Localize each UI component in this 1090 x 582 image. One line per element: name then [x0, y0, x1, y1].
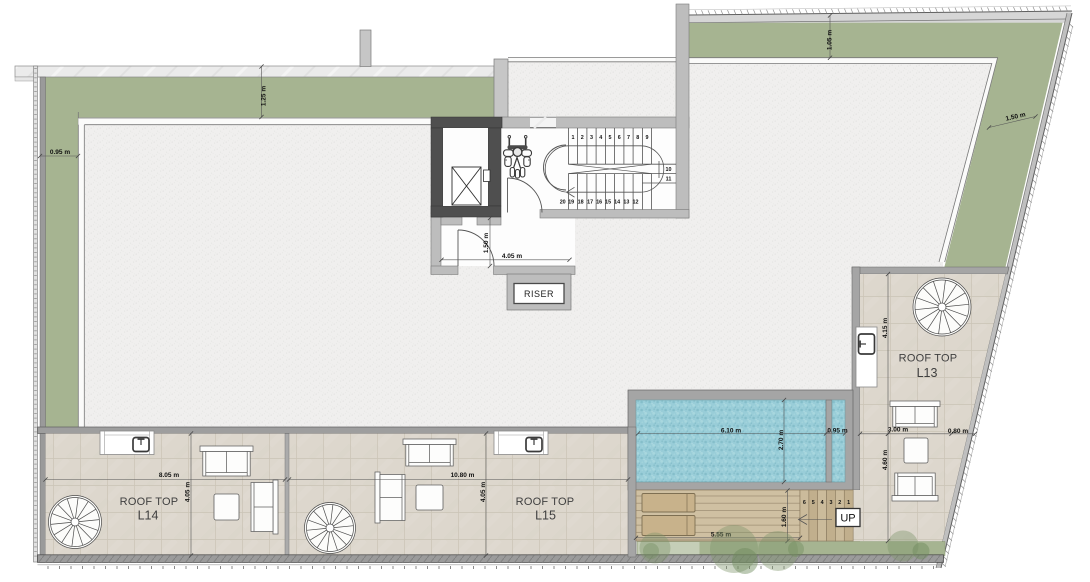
svg-text:RISER: RISER — [524, 289, 554, 299]
svg-text:4.60 m: 4.60 m — [882, 450, 889, 470]
svg-text:19: 19 — [568, 200, 574, 206]
svg-text:3: 3 — [590, 135, 593, 141]
svg-text:6.10 m: 6.10 m — [721, 428, 741, 435]
svg-text:3.00 m: 3.00 m — [888, 427, 908, 434]
svg-text:8: 8 — [636, 135, 639, 141]
svg-text:7: 7 — [627, 135, 630, 141]
svg-text:11: 11 — [666, 177, 672, 183]
svg-text:18: 18 — [578, 200, 584, 206]
svg-text:L14: L14 — [138, 509, 159, 523]
svg-text:6: 6 — [803, 500, 806, 506]
svg-text:0.95 m: 0.95 m — [827, 428, 847, 435]
svg-text:5: 5 — [812, 500, 815, 506]
svg-text:10.80 m: 10.80 m — [451, 472, 475, 479]
svg-text:20: 20 — [560, 200, 566, 206]
svg-text:2.70 m: 2.70 m — [778, 430, 785, 450]
svg-text:17: 17 — [587, 200, 593, 206]
svg-text:8.05 m: 8.05 m — [159, 472, 179, 479]
svg-text:ROOF TOP: ROOF TOP — [516, 496, 575, 508]
svg-text:4: 4 — [599, 135, 602, 141]
svg-text:0.95 m: 0.95 m — [50, 149, 70, 156]
svg-text:1: 1 — [572, 135, 575, 141]
svg-text:ROOF TOP: ROOF TOP — [120, 496, 179, 508]
svg-text:4.05 m: 4.05 m — [502, 253, 522, 260]
svg-text:4.05 m: 4.05 m — [480, 482, 487, 502]
svg-text:13: 13 — [623, 200, 629, 206]
svg-text:1.05 m: 1.05 m — [827, 30, 834, 50]
svg-text:1.50 m: 1.50 m — [483, 233, 490, 253]
svg-text:10: 10 — [666, 167, 672, 173]
svg-text:16: 16 — [596, 200, 602, 206]
svg-text:3: 3 — [829, 500, 832, 506]
svg-text:ROOF TOP: ROOF TOP — [899, 353, 958, 365]
svg-text:14: 14 — [614, 200, 620, 206]
svg-text:L15: L15 — [535, 509, 556, 523]
svg-text:15: 15 — [605, 200, 611, 206]
svg-text:2: 2 — [581, 135, 584, 141]
svg-text:4.05 m: 4.05 m — [185, 482, 192, 502]
svg-text:5: 5 — [609, 135, 612, 141]
svg-text:1: 1 — [847, 500, 850, 506]
svg-text:1.25 m: 1.25 m — [261, 86, 268, 106]
svg-text:2: 2 — [838, 500, 841, 506]
svg-text:UP: UP — [840, 513, 855, 525]
svg-text:4.15 m: 4.15 m — [882, 318, 889, 338]
svg-text:4: 4 — [821, 500, 824, 506]
svg-text:9: 9 — [646, 135, 649, 141]
svg-text:0.80 m: 0.80 m — [948, 428, 968, 435]
svg-text:12: 12 — [633, 200, 639, 206]
svg-text:1.60 m: 1.60 m — [781, 507, 788, 527]
svg-text:L13: L13 — [917, 366, 938, 380]
svg-text:6: 6 — [618, 135, 621, 141]
